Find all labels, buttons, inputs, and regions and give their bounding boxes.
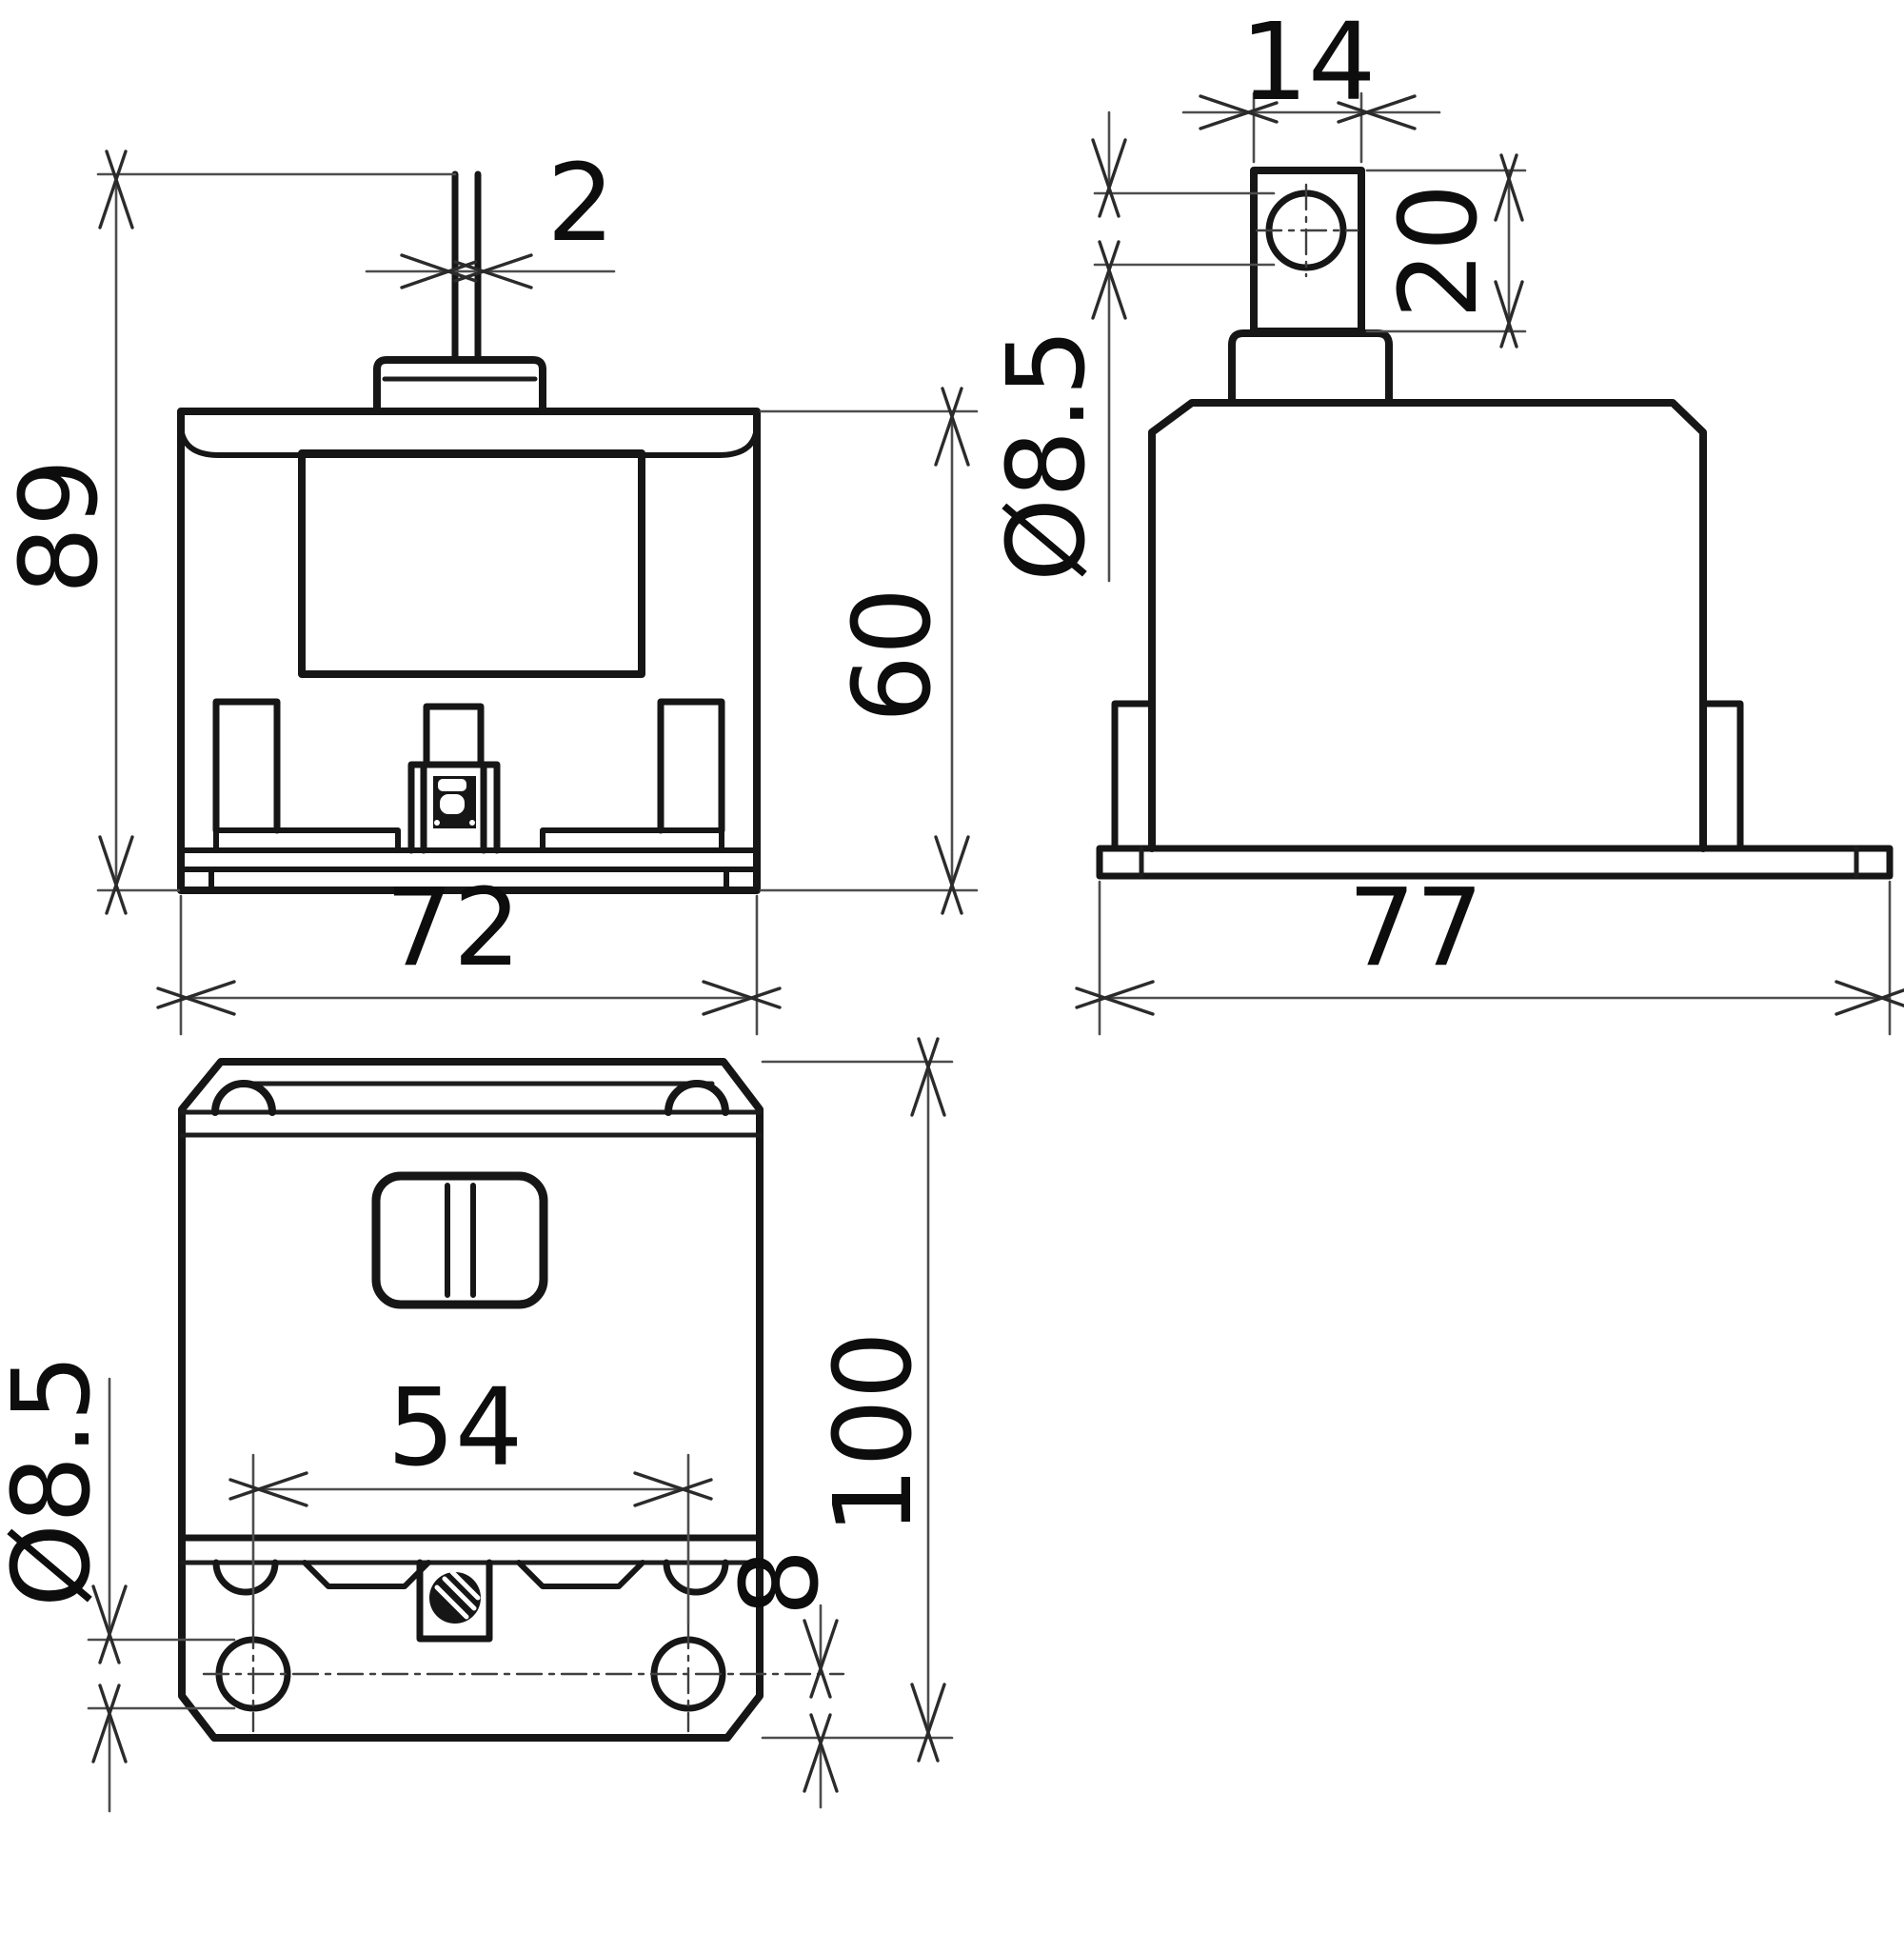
dimension-label: Ø8.5 [0,1354,114,1607]
dim-bottom-hole-diameter: Ø8.5 [0,1354,234,1811]
bottom-knob-slot [447,1186,473,1295]
dimension-label: 14 [1240,1,1377,125]
dimension-label: 60 [831,588,955,724]
front-shelves [216,830,722,850]
dimension-label: 20 [1378,184,1501,320]
dimension-label: Ø8.5 [985,329,1109,582]
dim-front-body-height: 60 [761,389,977,913]
side-neck [1232,333,1389,403]
side-base-flange [1100,848,1890,876]
front-window [302,453,642,674]
technical-drawing-canvas: 89 2 72 60 14 [0,0,1904,1933]
dim-side-tab-height: 20 [1367,155,1525,347]
dimension-label: 72 [386,867,522,990]
dim-front-pin-width: 2 [367,142,615,288]
bottom-screw-head [429,1572,481,1624]
side-feet [1115,704,1740,848]
drawing-page: 89 2 72 60 14 [0,0,1904,1933]
side-body-outline [1152,403,1703,848]
dimension-lines [1095,112,1274,581]
dimension-label: 2 [546,142,614,266]
dimension-label: 100 [812,1331,936,1535]
dimension-label: 89 [0,459,122,595]
dim-bottom-hole-edge-offset: 8 [719,1548,843,1807]
bottom-lid-band-lines [182,1112,760,1135]
side-base-ticks [1141,848,1856,876]
dim-bottom-overall-length: 100 [763,1039,952,1761]
dimension-label: 8 [719,1548,843,1616]
front-screw-dot-right [469,820,475,826]
front-screw-slot [438,779,466,791]
dimension-lines [1100,882,1890,1034]
bottom-knob [376,1176,544,1305]
dimension-label: 54 [387,1366,524,1490]
dimension-label: 77 [1348,867,1484,990]
dim-side-tab-width: 14 [1183,1,1439,162]
front-screw-dot-left [434,820,440,826]
dim-side-base-width: 77 [1077,867,1904,1034]
front-view [181,174,757,890]
front-cap [377,360,543,411]
dim-front-overall-height: 89 [0,151,455,913]
front-screw-head [440,794,465,814]
bottom-latch-bumps [215,1084,725,1112]
